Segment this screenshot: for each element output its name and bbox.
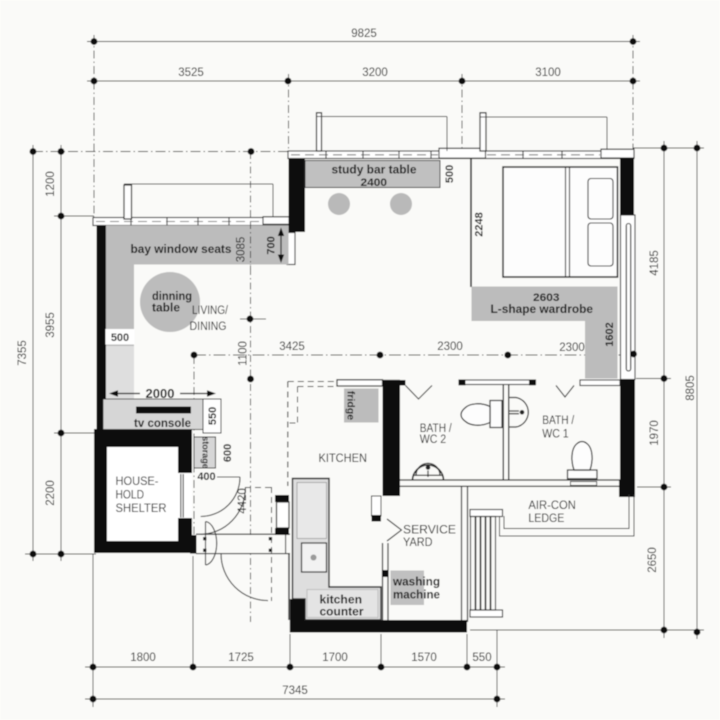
svg-text:3425: 3425 — [279, 341, 305, 353]
svg-text:1570: 1570 — [411, 652, 437, 664]
svg-text:3525: 3525 — [178, 67, 204, 79]
svg-text:2603: 2603 — [533, 292, 560, 304]
svg-text:8805: 8805 — [685, 375, 697, 401]
svg-text:9825: 9825 — [351, 28, 377, 40]
svg-text:2300: 2300 — [559, 342, 585, 354]
svg-text:HOUSE-: HOUSE- — [116, 476, 159, 488]
svg-text:DINING: DINING — [190, 321, 227, 333]
svg-text:SERVICE: SERVICE — [403, 525, 456, 537]
svg-text:KITCHEN: KITCHEN — [319, 453, 368, 465]
svg-text:1200: 1200 — [45, 171, 57, 197]
svg-text:1100: 1100 — [238, 341, 250, 366]
svg-text:500: 500 — [444, 165, 456, 183]
svg-text:LIVING/: LIVING/ — [192, 305, 229, 317]
svg-text:storage: storage — [201, 436, 211, 469]
svg-text:YARD: YARD — [403, 537, 433, 549]
svg-text:kitchen: kitchen — [320, 595, 363, 607]
svg-text:3100: 3100 — [535, 67, 561, 79]
svg-text:1602: 1602 — [604, 322, 616, 346]
svg-text:1725: 1725 — [228, 652, 254, 664]
svg-text:550: 550 — [472, 652, 491, 664]
svg-text:600: 600 — [222, 444, 234, 462]
svg-text:2248: 2248 — [474, 212, 486, 236]
svg-text:table: table — [152, 303, 180, 315]
svg-text:1970: 1970 — [649, 420, 661, 446]
svg-text:study bar table: study bar table — [332, 165, 417, 177]
svg-text:WC 2: WC 2 — [420, 434, 447, 446]
svg-text:fridge: fridge — [345, 391, 357, 420]
svg-text:2200: 2200 — [45, 480, 57, 506]
svg-text:SHELTER: SHELTER — [116, 503, 167, 515]
svg-text:washing: washing — [392, 577, 440, 589]
svg-text:AIR-CON: AIR-CON — [528, 500, 576, 512]
svg-text:WC 1: WC 1 — [542, 429, 569, 441]
svg-text:dinning: dinning — [152, 291, 192, 303]
svg-text:1800: 1800 — [130, 652, 156, 664]
svg-text:3955: 3955 — [45, 312, 57, 338]
svg-text:machine: machine — [393, 590, 440, 602]
svg-text:tv console: tv console — [134, 418, 191, 430]
svg-text:3085: 3085 — [236, 237, 248, 263]
svg-text:1700: 1700 — [322, 652, 348, 664]
svg-text:4420: 4420 — [237, 488, 249, 514]
svg-text:L-shape wardrobe: L-shape wardrobe — [491, 304, 594, 316]
svg-text:7355: 7355 — [17, 340, 29, 366]
svg-text:7345: 7345 — [282, 685, 308, 697]
svg-text:4185: 4185 — [649, 250, 661, 276]
svg-text:2300: 2300 — [437, 341, 463, 353]
svg-text:550: 550 — [207, 407, 219, 425]
svg-text:700: 700 — [266, 236, 278, 254]
svg-text:HOLD: HOLD — [116, 490, 145, 502]
svg-text:400: 400 — [197, 471, 215, 483]
svg-text:3200: 3200 — [362, 67, 388, 79]
svg-text:BATH /: BATH / — [542, 415, 575, 427]
svg-text:LEDGE: LEDGE — [528, 513, 564, 525]
svg-text:2000: 2000 — [146, 386, 175, 401]
svg-text:500: 500 — [111, 332, 129, 344]
svg-text:2650: 2650 — [647, 547, 659, 573]
svg-text:bay window seats: bay window seats — [131, 244, 232, 256]
svg-text:2400: 2400 — [361, 177, 388, 189]
svg-text:counter: counter — [320, 607, 365, 619]
